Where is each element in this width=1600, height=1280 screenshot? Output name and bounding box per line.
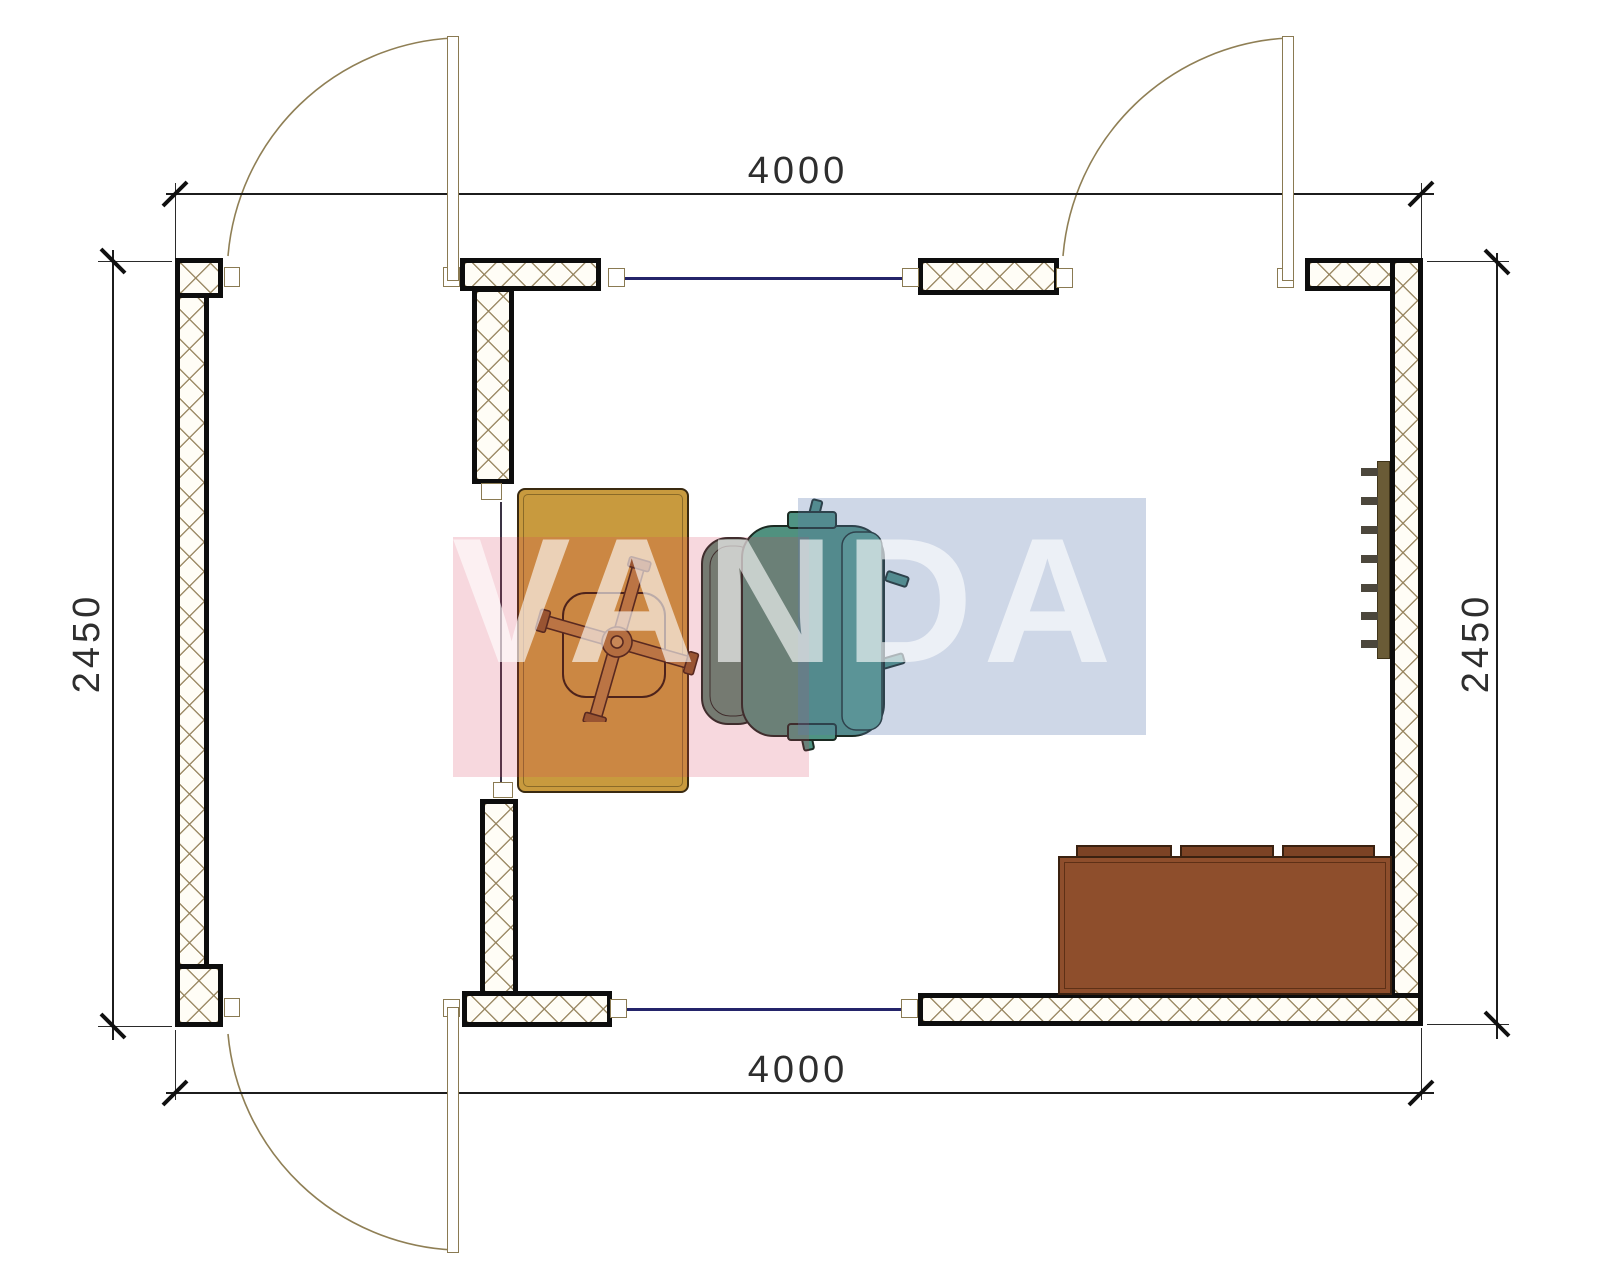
left-wall-top-foot [175, 258, 223, 298]
radiator-fin [1361, 526, 1378, 534]
radiator [1377, 461, 1390, 659]
watermark-text: VANDA [452, 512, 1152, 690]
left-dimension-line [112, 250, 114, 1040]
bottom-dimension-line [166, 1092, 1434, 1094]
top-left-wall-stem [472, 287, 514, 484]
bottom-dimension-label: 4000 [698, 1049, 898, 1092]
door-jamb [224, 267, 240, 287]
bottom-left-wall-stem [480, 799, 518, 997]
top-right-door-leaf [1282, 36, 1294, 281]
bottom-left-door-arc [228, 1034, 453, 1250]
top-middle-wall [918, 258, 1059, 295]
top-dimension-line [166, 193, 1434, 195]
window-jamb [901, 999, 918, 1018]
right-dimension-label: 2450 [1455, 573, 1499, 713]
extension-line [98, 261, 172, 262]
top-dimension-label: 4000 [698, 150, 898, 193]
left-wall-bottom-foot [175, 964, 223, 1027]
radiator-fin [1361, 555, 1378, 563]
extension-line [98, 1026, 172, 1027]
window-jamb [608, 268, 625, 287]
opening-jamb [481, 483, 502, 500]
door-jamb [224, 998, 240, 1017]
radiator-fin [1361, 584, 1378, 592]
floor-plan-canvas: 4000 4000 2450 2450 [0, 0, 1600, 1280]
window-jamb [610, 999, 627, 1018]
opening-jamb [493, 782, 513, 798]
bottom-left-wall-foot [462, 991, 612, 1027]
top-left-door-leaf [447, 36, 459, 281]
right-wall [1390, 258, 1423, 1026]
left-wall [175, 293, 209, 969]
top-left-door-arc [228, 38, 453, 256]
door-jamb [1056, 268, 1073, 288]
radiator-fin [1361, 612, 1378, 620]
sofa-seat-outline [1064, 862, 1386, 989]
top-right-door-arc [1063, 38, 1288, 256]
radiator-fin [1361, 468, 1378, 476]
radiator-fin [1361, 497, 1378, 505]
top-window-line [625, 277, 905, 280]
left-dimension-label: 2450 [66, 573, 110, 713]
bottom-wall [918, 993, 1423, 1026]
sofa [1058, 856, 1392, 995]
bottom-window-line [625, 1008, 903, 1011]
radiator-fin [1361, 640, 1378, 648]
bottom-left-door-leaf [447, 1007, 459, 1253]
window-jamb [902, 268, 919, 287]
